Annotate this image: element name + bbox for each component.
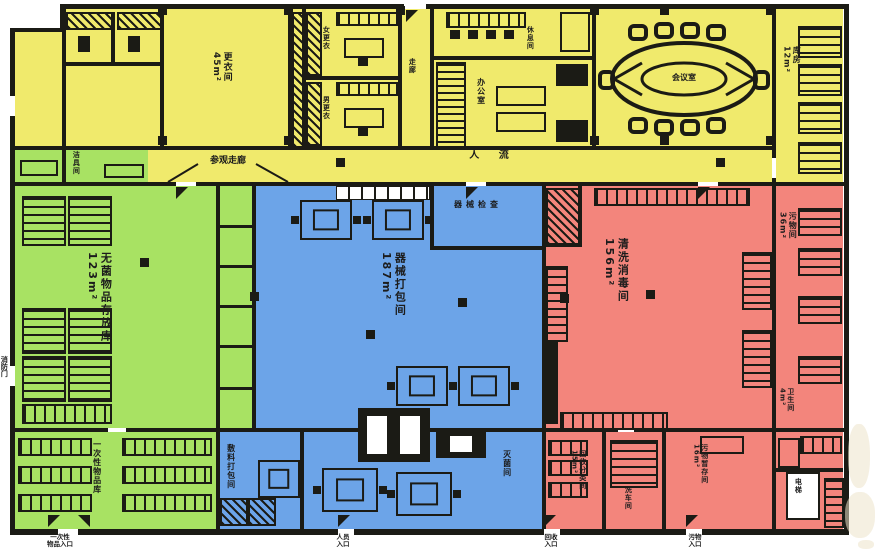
elevator-shaft <box>786 472 820 520</box>
office-cabinet-2 <box>556 120 588 142</box>
rest-cabinet <box>560 12 590 52</box>
dressing-bench-1 <box>220 498 248 526</box>
label-office: 办公室 <box>476 78 486 105</box>
column <box>366 330 375 339</box>
disp-rack-6 <box>122 494 212 512</box>
wall-corridor-top <box>15 146 772 150</box>
wall-v592 <box>592 9 596 146</box>
label-washroom-small: 卫生间 4m² <box>778 388 795 412</box>
column <box>660 136 669 145</box>
disp-rack-4 <box>122 466 212 484</box>
label-cart-wash: 洗车间 <box>624 486 632 510</box>
sterile-rack-3 <box>22 308 66 354</box>
wall-office-mid <box>434 56 592 60</box>
column <box>396 6 405 15</box>
label-passage: 走廊 <box>408 58 416 74</box>
wall-locker-mid <box>306 76 398 80</box>
label-wash-disinfect: 清洗消毒间 156m² <box>603 238 629 303</box>
locker-f <box>306 12 322 76</box>
column <box>140 258 149 267</box>
label-elevator: 电梯 <box>794 478 802 494</box>
rest-chair-2 <box>468 30 478 39</box>
column <box>250 292 259 301</box>
waste-rack-2 <box>798 248 842 276</box>
door-corridor-blue <box>466 182 486 186</box>
staircase <box>436 62 466 148</box>
wall-v430 <box>430 9 434 146</box>
disp-rack-2 <box>122 438 212 456</box>
wash-rack-right-2 <box>742 330 772 388</box>
disp-rack-3 <box>18 466 92 484</box>
label-recycle-sort: 回收分类间 15m² <box>570 450 587 490</box>
wall-bottom <box>10 529 849 535</box>
column <box>458 298 467 307</box>
label-corridor: 参观走廊 <box>200 156 256 166</box>
waste-rack-1 <box>798 208 842 236</box>
sterile-rack-1 <box>22 196 66 246</box>
scan-artifact <box>858 540 874 549</box>
wall-bot-b1b2 <box>300 432 304 529</box>
label-locker-f: 女更衣 <box>322 26 330 50</box>
wall-green-blue <box>252 185 256 428</box>
wall-left <box>10 4 15 535</box>
sink-counter-bottom <box>560 412 668 430</box>
waste-rack-3 <box>798 296 842 324</box>
wall-blue-sub-h <box>430 246 546 250</box>
label-inspection: 器械检查 <box>446 200 510 209</box>
store-rack-3 <box>798 102 842 134</box>
pass-div-3 <box>216 305 252 308</box>
wall-v772 <box>772 9 776 529</box>
desk-m <box>344 108 384 128</box>
label-dressing-pack: 敷料打包间 <box>226 444 236 489</box>
disp-rack-1 <box>18 438 92 456</box>
wash-counter-top <box>594 188 750 206</box>
label-rest-room: 休息间 <box>526 26 534 50</box>
wall-shower-bottom <box>62 62 164 66</box>
shower-fixture-2 <box>128 36 140 52</box>
column <box>158 6 167 15</box>
store-rack-1 <box>798 26 842 58</box>
rest-chair-1 <box>450 30 460 39</box>
column <box>590 136 599 145</box>
sterile-rack-5 <box>22 356 66 402</box>
label-changing: 更衣间 45m² <box>210 52 232 82</box>
store-rack-4 <box>798 142 842 174</box>
desk-f <box>344 38 384 58</box>
label-entrance-disposable: 一次性 物品入口 <box>34 534 86 549</box>
wall-bot-r2r3 <box>662 432 666 529</box>
wall-strip-div <box>62 149 66 182</box>
pass-div-1 <box>216 225 252 228</box>
wash-rack-right-1 <box>742 252 772 310</box>
column <box>284 6 293 15</box>
chair-f <box>358 58 368 66</box>
label-cleaning-tools: 洁具间 <box>72 151 80 175</box>
door-exit-top <box>404 4 426 9</box>
rest-chair-3 <box>486 30 496 39</box>
sterilizer-unit-2 <box>436 430 486 458</box>
label-instrument-pack: 器械打包间 187m² <box>380 252 406 317</box>
column <box>284 136 293 145</box>
label-entrance-staff: 人员 入口 <box>328 534 358 549</box>
cleaning-strip-sink <box>104 164 144 178</box>
packing-station-1 <box>300 200 352 240</box>
waste-rack-4 <box>798 356 842 384</box>
notch-wall-bottom <box>10 28 64 32</box>
label-entrance-waste: 污物 入口 <box>680 534 710 549</box>
cleaning-strip-bench <box>20 160 58 176</box>
disp-rack-5 <box>18 494 92 512</box>
locker-strip <box>292 12 306 148</box>
office-desk-1 <box>496 86 546 106</box>
column <box>716 158 725 167</box>
column <box>158 136 167 145</box>
washroom-fixture <box>778 438 800 468</box>
locker-row-f <box>336 12 398 26</box>
column <box>560 294 569 303</box>
door-corridor-rightcol <box>772 158 776 178</box>
wall-v398 <box>398 9 402 146</box>
sink-counter-left <box>546 340 558 424</box>
column <box>766 6 775 15</box>
pass-window-row <box>336 186 430 200</box>
wall-bot-r1r2 <box>602 432 606 529</box>
column <box>660 6 669 15</box>
sterilizer-double-door <box>358 408 430 462</box>
rest-chair-4 <box>504 30 514 39</box>
pass-div-5 <box>216 387 252 390</box>
shower-stall-hatch-1 <box>66 12 113 30</box>
scan-artifact <box>848 424 870 488</box>
shower-stall-hatch-2 <box>117 12 162 30</box>
pass-div-2 <box>216 265 252 268</box>
sterile-rack-2 <box>68 196 112 246</box>
locker-m <box>306 82 322 146</box>
label-flow: 人 流 <box>458 150 528 162</box>
rest-counter <box>446 12 526 28</box>
column <box>336 158 345 167</box>
scan-artifact <box>845 492 875 538</box>
label-waste-corridor: 污物间 36m² <box>778 212 797 239</box>
door-left-changing <box>10 96 15 116</box>
dressing-bench-2 <box>248 498 276 526</box>
door-corridor-red <box>698 182 718 186</box>
sterile-table-1 <box>322 468 378 512</box>
chair-m <box>358 128 368 136</box>
door-left-fire <box>10 366 15 386</box>
locker-row-m <box>336 82 398 96</box>
shower-fixture-1 <box>78 36 90 52</box>
label-entrance-recycle: 回收 入口 <box>536 534 566 549</box>
label-meeting-room: 会议室 <box>660 73 708 82</box>
pass-div-4 <box>216 345 252 348</box>
pass-washer-column <box>546 266 568 342</box>
dressing-table <box>258 460 300 498</box>
cart-wash-unit <box>610 440 658 488</box>
store-rack-2 <box>798 64 842 96</box>
label-locker-m: 男更衣 <box>322 96 330 120</box>
office-desk-2 <box>496 112 546 132</box>
red-sub-hatch <box>546 188 580 246</box>
washroom-bench <box>800 436 842 454</box>
packing-station-4 <box>458 366 510 406</box>
rightcol-sliver-rack <box>824 478 844 528</box>
sterile-rack-low <box>22 404 112 424</box>
column <box>646 290 655 299</box>
label-waste-hold: 污物暂存间 16m² <box>692 444 709 484</box>
sterile-rack-6 <box>68 356 112 402</box>
packing-station-3 <box>396 366 448 406</box>
label-store-right: 库房 12m² <box>782 46 801 73</box>
door-green-bottom <box>108 428 126 432</box>
label-sterilizer-room: 灭菌间 <box>502 450 512 477</box>
label-disposable-store: 一次性物品库 <box>92 440 102 494</box>
label-sterile-store: 无菌物品存放库 123m² <box>86 252 112 343</box>
floor-plan: 无菌物品存放库 123m² 器械打包间 187m² 清洗消毒间 156m² 更衣… <box>0 0 877 549</box>
packing-station-2 <box>372 200 424 240</box>
notch-top-left <box>10 4 60 28</box>
label-fire-door: 消防门 <box>0 356 8 377</box>
office-cabinet-1 <box>556 64 588 86</box>
column <box>766 136 775 145</box>
sterile-table-2 <box>396 472 452 516</box>
column <box>590 6 599 15</box>
